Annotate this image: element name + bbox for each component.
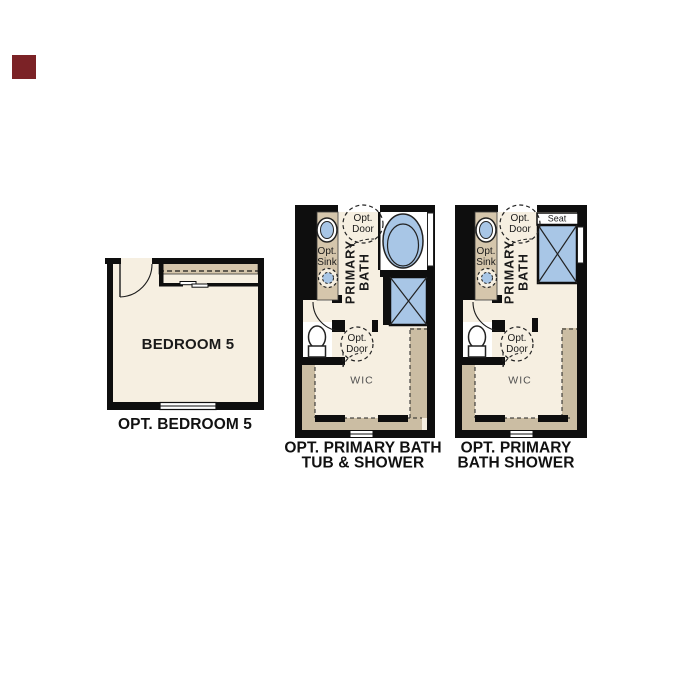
brand-logo-square (12, 55, 36, 79)
bath-tub-shower-caption: OPT. PRIMARY BATH TUB & SHOWER (284, 442, 441, 471)
opt-sink-label-line1: Opt. (477, 247, 496, 257)
floorplan-options-sheet: BEDROOM 5 OPT. BEDROOM 5 (0, 0, 687, 687)
caption-line2: BATH SHOWER (457, 456, 574, 471)
bedroom5-room-label: BEDROOM 5 (142, 337, 235, 353)
primary-bath-label: PRIMARY BATH (345, 240, 372, 304)
plan-opt-primary-bath-tub-shower: Opt. Sink PRIMARY BATH Opt. Door Opt. Do… (290, 200, 440, 475)
right-wall-window (428, 213, 434, 266)
bedroom-floor (107, 258, 264, 410)
opt-door-top-label-line2: Door (352, 225, 374, 235)
opt-sink-label-line1: Opt. (318, 247, 337, 257)
seat-label: Seat (548, 215, 567, 224)
opt-door-top-label-line1: Opt. (354, 214, 373, 224)
primary-bath-line1: PRIMARY (345, 240, 359, 304)
right-wall-window (578, 227, 584, 263)
caption-line2: TUB & SHOWER (284, 456, 441, 471)
primary-bath-label: PRIMARY BATH (504, 240, 531, 304)
opt-door-wic-label-line2: Door (346, 345, 368, 355)
bedroom5-caption: OPT. BEDROOM 5 (118, 418, 252, 433)
wic-bottom-door (350, 431, 373, 438)
primary-bath-line2: BATH (358, 240, 372, 304)
bedroom-window (160, 403, 216, 410)
opt-door-top-label-line2: Door (509, 225, 531, 235)
wic-label: WIC (350, 375, 373, 386)
wic-label: WIC (508, 375, 531, 386)
bedroom-closet (159, 261, 258, 287)
opt-sink-label-line2: Sink (476, 258, 495, 268)
shower-stall (390, 277, 427, 325)
primary-bath-line1: PRIMARY (504, 240, 518, 304)
primary-bath-line2: BATH (517, 240, 531, 304)
opt-door-wic-label-line2: Door (506, 345, 528, 355)
wic-bottom-door (510, 431, 533, 438)
shower-stall (538, 225, 577, 283)
plan-opt-bedroom-5: BEDROOM 5 OPT. BEDROOM 5 (95, 250, 285, 445)
opt-sink-label-line2: Sink (317, 258, 336, 268)
opt-door-wic-label-line1: Opt. (348, 334, 367, 344)
opt-door-wic-label-line1: Opt. (508, 334, 527, 344)
opt-door-top-label-line1: Opt. (511, 214, 530, 224)
tub-niche (378, 212, 427, 270)
plan-opt-primary-bath-shower: Opt. Sink PRIMARY BATH Opt. Door Seat Op… (450, 200, 595, 475)
bath-shower-caption: OPT. PRIMARY BATH SHOWER (457, 442, 574, 471)
